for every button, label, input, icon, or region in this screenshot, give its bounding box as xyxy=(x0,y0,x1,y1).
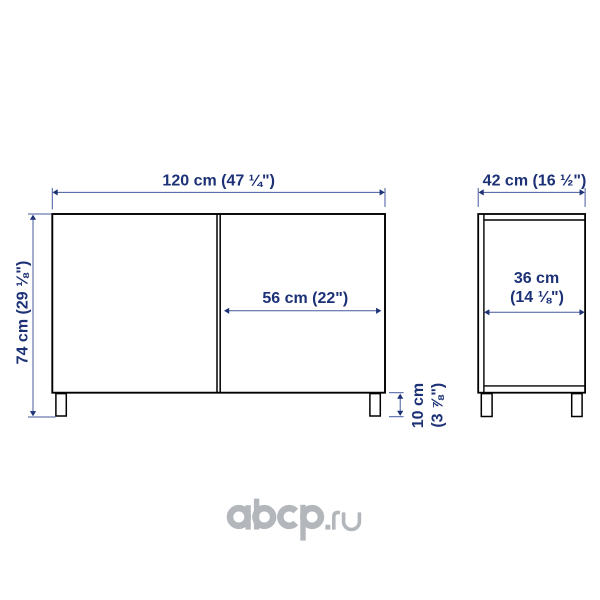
svg-text:36 cm: 36 cm xyxy=(514,270,559,287)
svg-text:10 cm: 10 cm xyxy=(410,383,427,428)
svg-text:(14 ⅛"): (14 ⅛") xyxy=(510,289,564,306)
svg-text:(3 ⅞"): (3 ⅞") xyxy=(430,383,447,428)
svg-text:56 cm (22"): 56 cm (22") xyxy=(262,290,348,307)
svg-text:42 cm (16 ½"): 42 cm (16 ½") xyxy=(483,173,587,190)
svg-text:120 cm (47 ¼"): 120 cm (47 ¼") xyxy=(162,173,275,190)
svg-text:74 cm (29 ⅛"): 74 cm (29 ⅛") xyxy=(15,261,32,365)
